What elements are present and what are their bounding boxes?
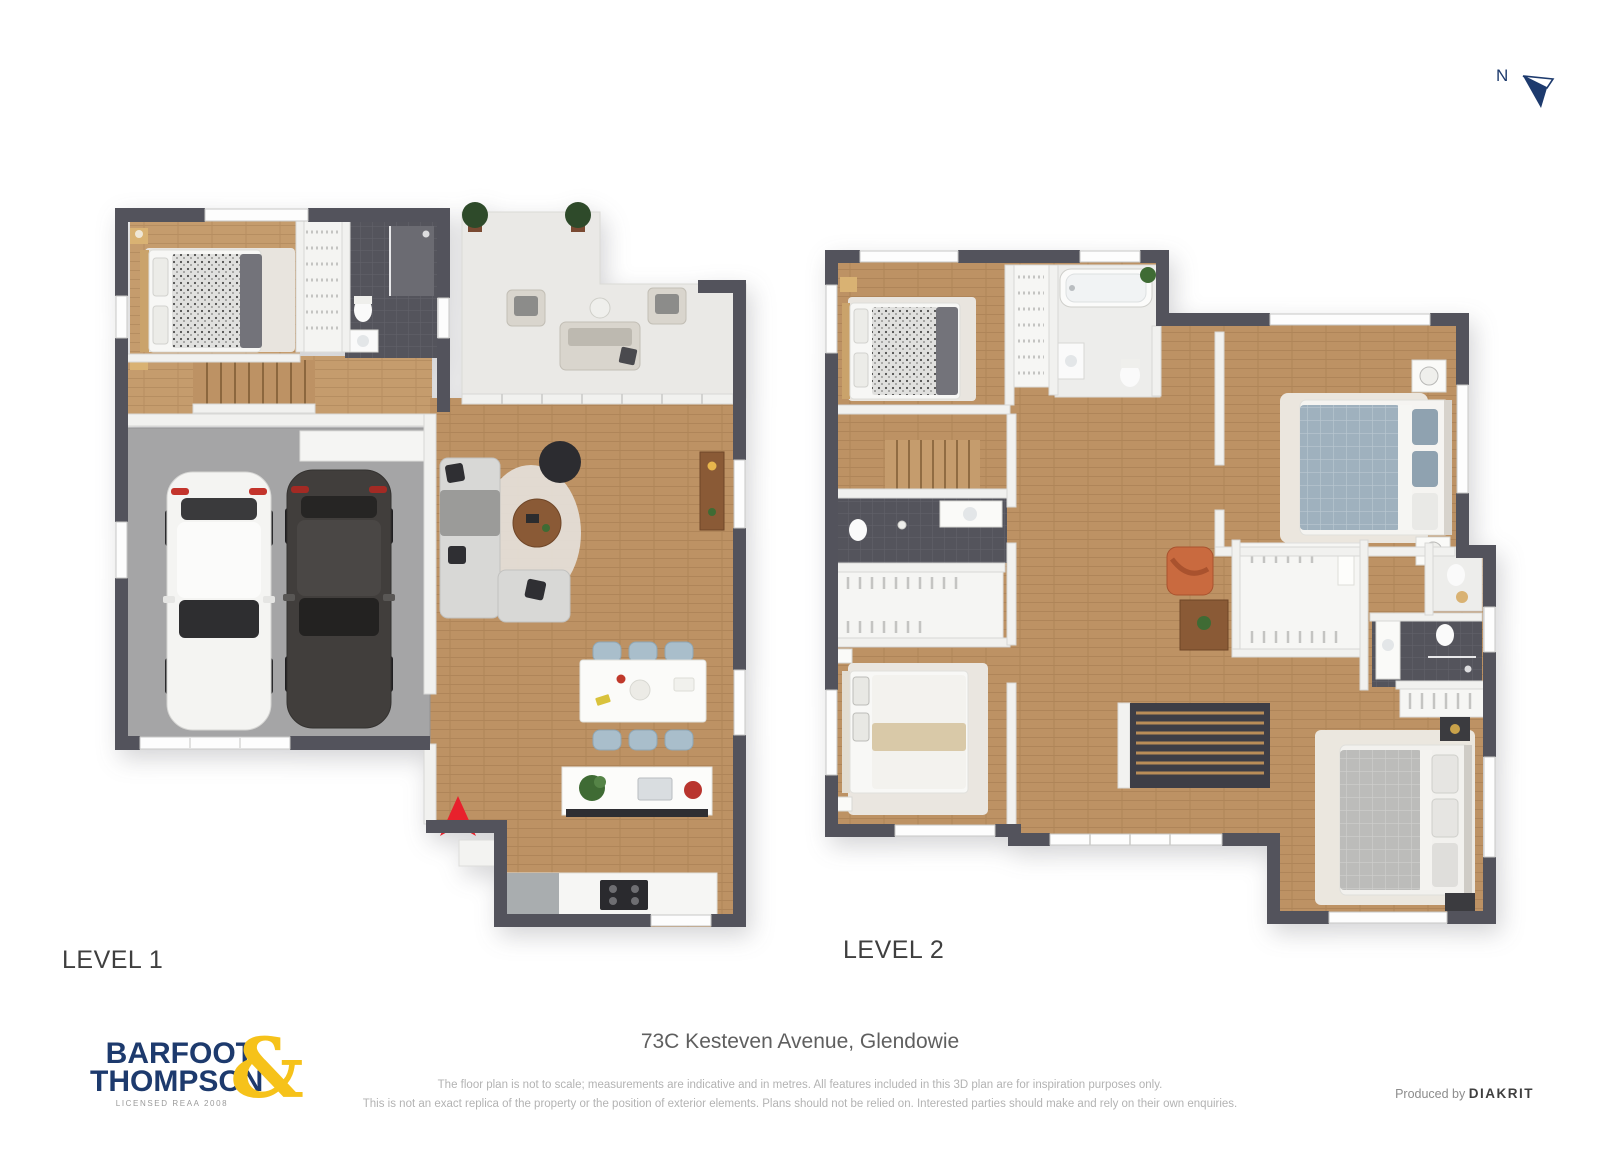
side-table	[1180, 600, 1228, 650]
disclaimer-line1: The floor plan is not to scale; measurem…	[0, 1076, 1600, 1095]
nightstand	[836, 797, 852, 811]
level-2-label: LEVEL 2	[843, 936, 944, 965]
coffee-table	[513, 499, 561, 547]
level-2-floorplan	[800, 225, 1505, 935]
nightstand	[840, 277, 857, 292]
dining-area	[580, 642, 706, 750]
shower-head-icon	[423, 231, 430, 238]
dining-table	[580, 660, 706, 722]
console-table	[700, 452, 724, 530]
disclaimer: The floor plan is not to scale; measurem…	[0, 1076, 1600, 1114]
car-dark	[283, 470, 395, 728]
entry-step	[459, 840, 499, 866]
stove	[600, 880, 648, 910]
nightstand	[836, 649, 852, 663]
nightstand	[1445, 893, 1475, 911]
fruit-bowl	[684, 781, 702, 799]
bathroom	[1055, 265, 1160, 397]
bedroom	[836, 649, 988, 815]
wardrobe	[1013, 265, 1049, 387]
toilet	[1436, 624, 1454, 646]
car-white	[163, 472, 275, 730]
toilet	[1447, 564, 1465, 586]
shower-head-icon	[1465, 666, 1472, 673]
level-1-floorplan	[60, 190, 750, 940]
toilet	[849, 519, 867, 541]
nightstand	[130, 228, 148, 244]
nightstand	[1440, 717, 1470, 741]
bed	[140, 250, 262, 352]
garage-door	[140, 737, 290, 749]
produced-by: Produced by DIAKRIT	[1395, 1086, 1534, 1101]
bed	[842, 671, 968, 793]
plant	[1140, 267, 1156, 283]
garage	[122, 428, 430, 748]
produced-by-label: Produced by	[1395, 1087, 1465, 1101]
bathroom	[1372, 617, 1482, 687]
storage-cabinet	[300, 431, 428, 461]
knit-throw	[872, 723, 966, 751]
producer-name: DIAKRIT	[1469, 1086, 1534, 1101]
bed	[1340, 745, 1472, 895]
sink	[638, 778, 672, 800]
north-label: N	[1496, 66, 1508, 85]
stairwell-void	[1118, 703, 1270, 788]
kitchen-island	[562, 767, 712, 817]
walk-in-wardrobe	[835, 570, 1003, 638]
bathroom	[345, 220, 437, 358]
pendant-light-icon	[898, 521, 906, 529]
kitchen	[497, 873, 717, 915]
property-address: 73C Kesteven Avenue, Glendowie	[0, 1030, 1600, 1054]
bed	[842, 303, 960, 399]
nightstand	[1412, 360, 1446, 392]
armchair	[1167, 547, 1213, 595]
bedroom	[130, 228, 295, 370]
patio	[462, 202, 746, 398]
walk-in-wardrobe	[1240, 543, 1362, 651]
bedroom	[1315, 717, 1475, 911]
wardrobe	[300, 220, 345, 352]
bed	[1300, 400, 1452, 535]
ensuite-bathroom	[835, 497, 1007, 563]
ottoman	[539, 441, 581, 483]
north-compass-icon: N	[1468, 48, 1563, 123]
closet	[1400, 687, 1486, 717]
level-1-label: LEVEL 1	[62, 946, 163, 975]
stairs	[193, 360, 315, 413]
disclaimer-line2: This is not an exact replica of the prop…	[0, 1095, 1600, 1114]
